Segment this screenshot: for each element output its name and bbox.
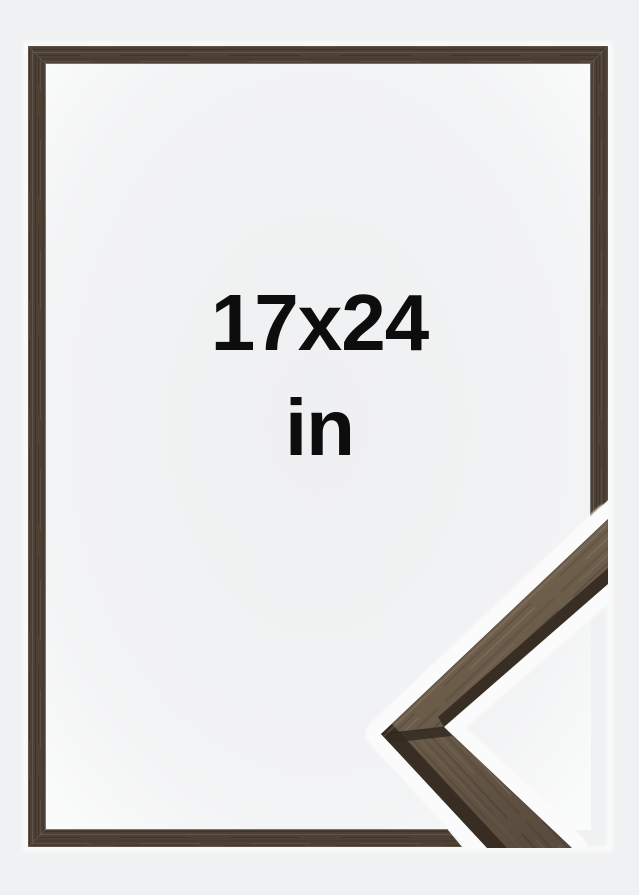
product-image[interactable]: 17x24 in: [0, 0, 639, 895]
size-label: 17x24 in: [0, 271, 639, 481]
size-value: 17x24: [0, 271, 639, 376]
frame-bottom-grain: [28, 830, 462, 847]
frame-top-grain: [28, 46, 608, 63]
size-unit: in: [0, 376, 639, 481]
